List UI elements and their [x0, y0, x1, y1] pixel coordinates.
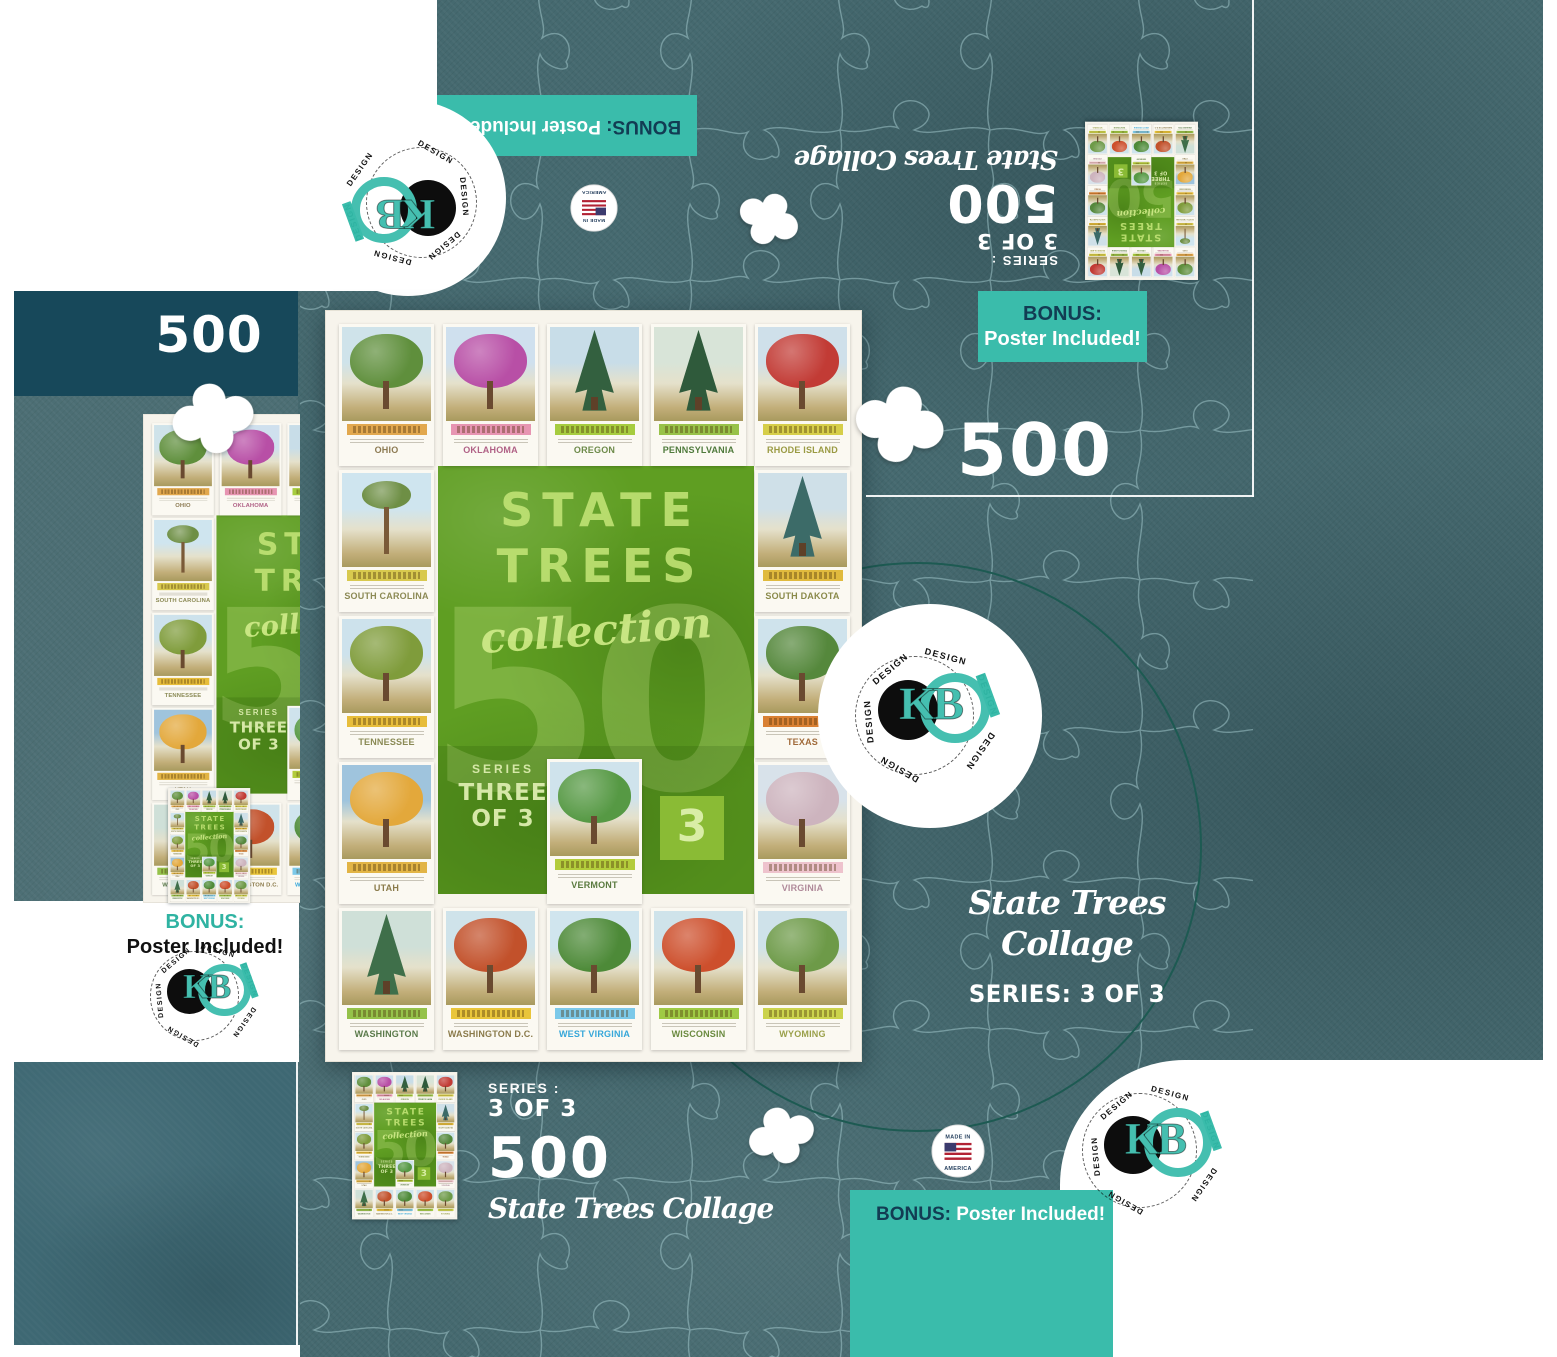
- state-card-art: [376, 1190, 393, 1208]
- species-band-text: [419, 1209, 432, 1210]
- state-card-art: [1132, 257, 1151, 277]
- species-band: [187, 805, 199, 807]
- state-card-art: [1176, 195, 1195, 215]
- state-card-subline: [662, 439, 736, 443]
- species-band: [157, 583, 209, 590]
- state-name: TENNESSEE: [152, 692, 214, 699]
- tree-foliage: [1090, 202, 1105, 213]
- state-card-art: [234, 858, 248, 872]
- species-band-text: [1112, 254, 1126, 255]
- species-band: [219, 895, 231, 897]
- state-card: OREGON: [1131, 247, 1151, 277]
- state-card-art: [1088, 164, 1107, 184]
- state-card-art: [187, 880, 201, 894]
- state-card: VIRGINIA: [1088, 155, 1108, 185]
- cover-series-small: SERIES: [448, 762, 558, 776]
- state-name: OREGON: [396, 1098, 415, 1100]
- tree-trunk: [487, 965, 493, 993]
- state-name: WYOMING: [436, 1213, 455, 1215]
- state-name: WASHINGTON: [339, 1029, 434, 1039]
- tree-trunk: [591, 397, 598, 410]
- state-name: WASHINGTON: [355, 1213, 374, 1215]
- species-band: [171, 895, 183, 897]
- cover-number-badge: 3: [418, 1167, 431, 1180]
- kb-logo-side-flap: KBDESIGNDESIGNDESIGNDESIGNDESIGNDESIGN: [150, 940, 262, 1052]
- state-name: SOUTH DAKOTA: [436, 1127, 455, 1129]
- state-card-art: [654, 911, 743, 1005]
- species-band: [171, 850, 183, 852]
- species-band-text: [229, 489, 273, 494]
- state-card: SOUTH DAKOTA: [755, 470, 850, 612]
- state-card: OHIO: [339, 324, 434, 466]
- tree-trunk: [241, 799, 242, 803]
- species-band: [555, 859, 635, 870]
- species-band-text: [357, 1095, 370, 1096]
- state-card: SOUTH CAROLINA: [152, 518, 214, 610]
- state-card-subline: [294, 781, 300, 784]
- state-name: RHODE ISLAND: [436, 1098, 455, 1100]
- species-band: [377, 1094, 393, 1096]
- species-band: [292, 771, 300, 778]
- state-card: RHODE ISLAND: [436, 1075, 455, 1103]
- state-card: UTAH: [152, 708, 214, 800]
- state-card-subline: [662, 1023, 736, 1027]
- state-name: OKLAHOMA: [443, 445, 538, 455]
- state-card-art: [234, 791, 248, 805]
- tree-trunk: [177, 891, 178, 893]
- species-band-text: [1178, 162, 1192, 163]
- species-band-text: [172, 806, 182, 807]
- species-band: [438, 1180, 454, 1182]
- state-card: WISCONSIN: [1109, 124, 1129, 154]
- state-card-art: [1088, 226, 1107, 246]
- state-card-art: [342, 473, 431, 567]
- state-card: UTAH: [355, 1161, 374, 1189]
- state-card-art: [1110, 257, 1129, 277]
- state-card-art: [289, 425, 300, 486]
- species-band-text: [1156, 254, 1170, 255]
- species-band: [1133, 131, 1150, 133]
- state-name: VERMONT: [396, 1184, 415, 1186]
- side-flap-piece-count: 500: [139, 306, 279, 364]
- state-card-art: [355, 1161, 372, 1179]
- species-band-text: [236, 850, 246, 851]
- species-band: [235, 805, 247, 807]
- species-band: [356, 1094, 372, 1096]
- state-name: WASHINGTON D.C.: [375, 1213, 394, 1215]
- species-band: [356, 1123, 372, 1125]
- species-band: [203, 895, 215, 897]
- tree-trunk: [177, 866, 178, 870]
- state-name: WASHINGTON D.C.: [186, 898, 201, 900]
- tree-foliage: [167, 525, 199, 543]
- tree-trunk: [384, 507, 389, 554]
- species-band: [451, 424, 531, 435]
- state-name: TEXAS: [436, 1156, 455, 1158]
- state-card-subline: [294, 498, 300, 501]
- state-card-art: [355, 1190, 372, 1208]
- state-card-art: [437, 1161, 454, 1179]
- state-card: WEST VIRGINIA: [1131, 124, 1151, 154]
- species-band-text: [353, 426, 420, 433]
- state-card-art: [171, 813, 185, 827]
- species-band: [659, 424, 739, 435]
- tree-trunk: [799, 965, 805, 993]
- state-card: TENNESSEE: [339, 616, 434, 758]
- cover-number-badge: 3: [660, 796, 724, 860]
- state-card-art: [202, 791, 216, 805]
- species-band-text: [769, 1010, 836, 1017]
- state-name: SOUTH DAKOTA: [1088, 219, 1108, 221]
- tree-trunk: [445, 1200, 446, 1206]
- state-name: PENNSYLVANIA: [416, 1098, 435, 1100]
- species-band: [347, 424, 427, 435]
- species-band: [555, 1008, 635, 1019]
- kb-letters: KB: [159, 967, 253, 1007]
- state-card-art: [446, 911, 535, 1005]
- species-band-text: [1178, 254, 1192, 255]
- species-band: [397, 1180, 413, 1182]
- species-band: [235, 850, 247, 852]
- series-label: SERIES :: [488, 1080, 788, 1096]
- back-bonus-box: BONUS: Poster Included!: [978, 291, 1147, 362]
- state-card: WISCONSIN: [651, 908, 746, 1050]
- state-card-art: [1154, 134, 1173, 154]
- species-band: [1089, 223, 1106, 225]
- state-name: OHIO: [170, 809, 185, 811]
- state-card-art: [342, 327, 431, 421]
- species-band: [1111, 131, 1128, 133]
- species-band: [171, 805, 183, 807]
- state-card: OKLAHOMA: [375, 1075, 394, 1103]
- state-card-subline: [159, 688, 207, 691]
- state-name: SOUTH CAROLINA: [339, 591, 434, 601]
- species-band: [347, 862, 427, 873]
- tree-trunk: [1119, 259, 1120, 262]
- state-card: SOUTH CAROLINA: [339, 470, 434, 612]
- species-band: [1155, 131, 1172, 133]
- state-card-art: [758, 473, 847, 567]
- tree-trunk: [591, 965, 597, 993]
- tree-trunk: [1185, 259, 1186, 265]
- state-card-art: [1088, 134, 1107, 154]
- tree-foliage: [1134, 172, 1149, 183]
- state-card-art: [171, 880, 185, 894]
- state-card-art: [416, 1190, 433, 1208]
- bonus-prefix: BONUS:: [876, 1204, 951, 1225]
- cover-series-block: SERIESTHREEOF 3: [223, 708, 295, 754]
- state-card: TENNESSEE: [170, 835, 185, 857]
- state-name: PENNSYLVANIA: [218, 809, 233, 811]
- species-band-text: [439, 1095, 452, 1096]
- state-card: OREGON: [202, 790, 217, 812]
- species-band-text: [439, 1181, 452, 1182]
- species-band-text: [220, 806, 230, 807]
- species-band-text: [172, 828, 182, 829]
- state-card: SOUTH CAROLINA: [355, 1103, 374, 1131]
- state-card-art: [234, 813, 248, 827]
- state-card-subline: [350, 877, 424, 881]
- species-band: [397, 1094, 413, 1096]
- state-card: OKLAHOMA: [443, 324, 538, 466]
- state-card: PENNSYLVANIA: [218, 790, 233, 812]
- species-band: [1177, 131, 1194, 133]
- species-band: [417, 1209, 433, 1211]
- tree-trunk: [363, 1143, 364, 1149]
- bonus-prefix: BONUS:: [95, 910, 315, 935]
- tree-foliage: [294, 712, 300, 747]
- species-band-text: [1112, 131, 1126, 132]
- cover-badge-number: 3: [1114, 166, 1127, 177]
- state-card-art: [187, 791, 201, 805]
- state-name: OHIO: [355, 1098, 374, 1100]
- tree-foliage: [1156, 141, 1171, 152]
- species-band-text: [236, 895, 246, 896]
- tree-trunk: [363, 1086, 364, 1092]
- tree-trunk: [181, 745, 185, 763]
- state-card: WISCONSIN: [416, 1189, 435, 1217]
- tree-trunk: [225, 888, 226, 892]
- state-name: OREGON: [287, 502, 300, 509]
- state-card-subline: [350, 439, 424, 443]
- species-band: [1089, 162, 1106, 164]
- fold-line-vertical: [1252, 0, 1254, 497]
- state-card-art: [376, 1075, 393, 1093]
- kb-letters: KB: [1094, 1113, 1216, 1165]
- tree-trunk: [209, 865, 210, 869]
- bonus-prefix: BONUS:: [978, 302, 1147, 327]
- state-card: UTAH: [1175, 155, 1195, 185]
- state-name: WASHINGTON: [170, 898, 185, 900]
- state-card-art: [355, 1104, 372, 1122]
- cover-series-small: SERIES: [376, 1161, 398, 1164]
- species-band: [763, 862, 843, 873]
- species-band-text: [457, 426, 524, 433]
- state-card: SOUTH DAKOTA: [1088, 216, 1108, 246]
- state-card-art: [202, 857, 216, 871]
- state-name: WASHINGTON D.C.: [1153, 127, 1173, 129]
- tree-trunk: [209, 888, 210, 892]
- species-band-text: [172, 895, 182, 896]
- state-card: TENNESSEE: [1175, 186, 1195, 216]
- tree-foliage: [1090, 171, 1105, 182]
- species-band-text: [296, 772, 300, 777]
- state-card: TENNESSEE: [152, 613, 214, 705]
- tree-trunk: [181, 542, 184, 573]
- species-band-text: [353, 1010, 420, 1017]
- front-title-script: State Trees Collage: [952, 882, 1182, 965]
- puzzle-piece-side-flap: [154, 363, 268, 477]
- state-card: RHODE ISLAND: [234, 790, 249, 812]
- tree-trunk: [248, 460, 252, 478]
- bonus-prefix: BONUS:: [607, 116, 682, 137]
- cover-number-badge: 3: [1114, 164, 1127, 177]
- state-name: SOUTH DAKOTA: [755, 591, 850, 601]
- state-card: WYOMING: [234, 879, 249, 901]
- state-card-art: [416, 1075, 433, 1093]
- state-card-subline: [558, 439, 632, 443]
- species-band-text: [353, 864, 420, 871]
- title-script: State Trees Collage: [833, 144, 1058, 174]
- tree-trunk: [177, 818, 178, 825]
- state-name: SOUTH DAKOTA: [234, 831, 249, 833]
- cover-badge-number: 3: [219, 863, 229, 871]
- state-card-art: [171, 791, 185, 805]
- species-band-text: [1134, 131, 1148, 132]
- cover-series-of3: OF 3: [223, 737, 295, 754]
- state-card: UTAH: [170, 857, 185, 879]
- state-card: WASHINGTON: [355, 1189, 374, 1217]
- puzzle-piece-icon: [835, 363, 958, 486]
- tree-trunk: [445, 1086, 446, 1092]
- state-card-art: [437, 1133, 454, 1151]
- species-band-text: [172, 873, 182, 874]
- state-card: WEST VIRGINIA: [396, 1189, 415, 1217]
- state-name: OREGON: [202, 809, 217, 811]
- state-card-subline: [454, 439, 528, 443]
- bottom-flap-thumbnail: STATETREEScollection50SERIESTHREEOF 33OH…: [352, 1072, 457, 1219]
- state-name: UTAH: [170, 876, 185, 878]
- state-card-art: [1132, 134, 1151, 154]
- state-card-art: [396, 1161, 413, 1179]
- state-name: WEST VIRGINIA: [202, 898, 217, 900]
- left-margin: [0, 0, 14, 1357]
- state-name: WASHINGTON: [1175, 127, 1195, 129]
- tree-trunk: [1141, 136, 1142, 142]
- state-name: SOUTH CAROLINA: [355, 1127, 374, 1129]
- tree-foliage: [294, 809, 300, 844]
- tree-foliage: [1177, 264, 1192, 275]
- top-bonus-text: BONUS: Poster Included!: [452, 115, 681, 137]
- back-panel-thumbnail-rotated: STATETREEScollection50SERIESTHREEOF 33OH…: [1085, 122, 1198, 280]
- fold-line-vertical-2: [296, 1062, 298, 1346]
- tree-foliage: [1134, 141, 1149, 152]
- state-card-art: [758, 765, 847, 859]
- species-band: [157, 488, 209, 495]
- front-panel-cover: STATETREEScollection50SERIESTHREEOF 33OH…: [325, 310, 862, 1062]
- state-card: SOUTH CAROLINA: [170, 812, 185, 834]
- state-card: WASHINGTON D.C.: [186, 879, 201, 901]
- kb-logo-top-rotated: KBDESIGNDESIGNDESIGNDESIGNDESIGNDESIGN: [337, 132, 477, 272]
- species-band-text: [1156, 131, 1170, 132]
- made-in-america-badge: MADE IN AMERICA: [570, 184, 618, 232]
- state-card: TEXAS: [1088, 186, 1108, 216]
- species-band: [235, 872, 247, 874]
- state-card-art: [342, 619, 431, 713]
- state-card: WASHINGTON D.C.: [443, 908, 538, 1050]
- state-name: WISCONSIN: [1109, 127, 1129, 129]
- state-card: WASHINGTON: [339, 908, 434, 1050]
- species-band: [763, 570, 843, 581]
- species-band: [451, 1008, 531, 1019]
- tree-trunk: [695, 965, 701, 993]
- state-card: RHODE ISLAND: [755, 324, 850, 466]
- state-card-subline: [766, 877, 840, 881]
- species-band-text: [357, 1181, 370, 1182]
- state-card: VERMONT: [287, 706, 300, 800]
- state-card-art: [1088, 257, 1107, 277]
- tree-trunk: [1097, 228, 1098, 231]
- tree-trunk: [404, 1200, 405, 1206]
- bottom-left-flap: [14, 1062, 298, 1345]
- state-card: WEST VIRGINIA: [202, 879, 217, 901]
- state-name: WEST VIRGINIA: [547, 1029, 642, 1039]
- state-name: OREGON: [547, 445, 642, 455]
- tree-trunk: [445, 1172, 446, 1178]
- tree-trunk: [241, 866, 242, 870]
- state-card: SOUTH DAKOTA: [234, 812, 249, 834]
- cover-title-line1: STATE: [374, 1106, 436, 1115]
- state-card-art: [437, 1190, 454, 1208]
- tree-trunk: [177, 799, 178, 803]
- species-band: [438, 1094, 454, 1096]
- species-band-text: [236, 828, 246, 829]
- state-card: TEXAS: [436, 1132, 455, 1160]
- state-name: VIRGINIA: [234, 876, 249, 878]
- species-band-text: [1090, 223, 1104, 224]
- species-band-text: [398, 1095, 411, 1096]
- species-band: [1155, 254, 1172, 256]
- species-band-text: [769, 572, 836, 579]
- species-band: [1177, 192, 1194, 194]
- species-band-text: [236, 873, 246, 874]
- state-name: TEXAS: [234, 853, 249, 855]
- tree-trunk: [591, 816, 597, 844]
- state-card-subline: [454, 1023, 528, 1027]
- tree-foliage: [1112, 141, 1127, 152]
- made-in-text: MADE IN: [583, 217, 606, 223]
- state-card-art: [171, 858, 185, 872]
- state-name: OHIO: [339, 445, 434, 455]
- state-name: TENNESSEE: [355, 1156, 374, 1158]
- cover-series-of3: OF 3: [448, 806, 558, 832]
- tree-trunk: [1141, 259, 1142, 262]
- state-card: WYOMING: [436, 1189, 455, 1217]
- state-name: TENNESSEE: [1175, 188, 1195, 190]
- cover-series-of3: OF 3: [376, 1169, 398, 1174]
- species-band: [763, 424, 843, 435]
- cover-series-small: SERIES: [1149, 182, 1172, 185]
- state-name: OKLAHOMA: [375, 1098, 394, 1100]
- species-band-text: [161, 584, 205, 589]
- state-card: OHIO: [1175, 247, 1195, 277]
- species-band-text: [439, 1123, 452, 1124]
- state-card-art: [202, 880, 216, 894]
- state-name: UTAH: [339, 883, 434, 893]
- state-card: RHODE ISLAND: [1088, 247, 1108, 277]
- tree-trunk: [425, 1089, 426, 1092]
- species-band-text: [1178, 193, 1192, 194]
- cover-number-badge: 3: [219, 862, 229, 872]
- tree-trunk: [799, 819, 805, 847]
- cover-series-small: SERIES: [223, 708, 295, 717]
- species-band: [347, 716, 427, 727]
- state-name: UTAH: [355, 1184, 374, 1186]
- state-name: OKLAHOMA: [186, 809, 201, 811]
- tree-foliage: [1180, 238, 1190, 244]
- state-card: WEST VIRGINIA: [547, 908, 642, 1050]
- state-name: SOUTH CAROLINA: [1175, 219, 1195, 221]
- cover-title-line1: STATE: [438, 486, 754, 534]
- state-card-art: [154, 615, 212, 676]
- species-band: [347, 570, 427, 581]
- species-band-text: [439, 1152, 452, 1153]
- state-card: PENNSYLVANIA: [651, 324, 746, 466]
- cover-series-three: THREE: [1149, 176, 1172, 182]
- species-band-text: [1090, 162, 1104, 163]
- state-card-art: [218, 880, 232, 894]
- species-band-text: [378, 1095, 391, 1096]
